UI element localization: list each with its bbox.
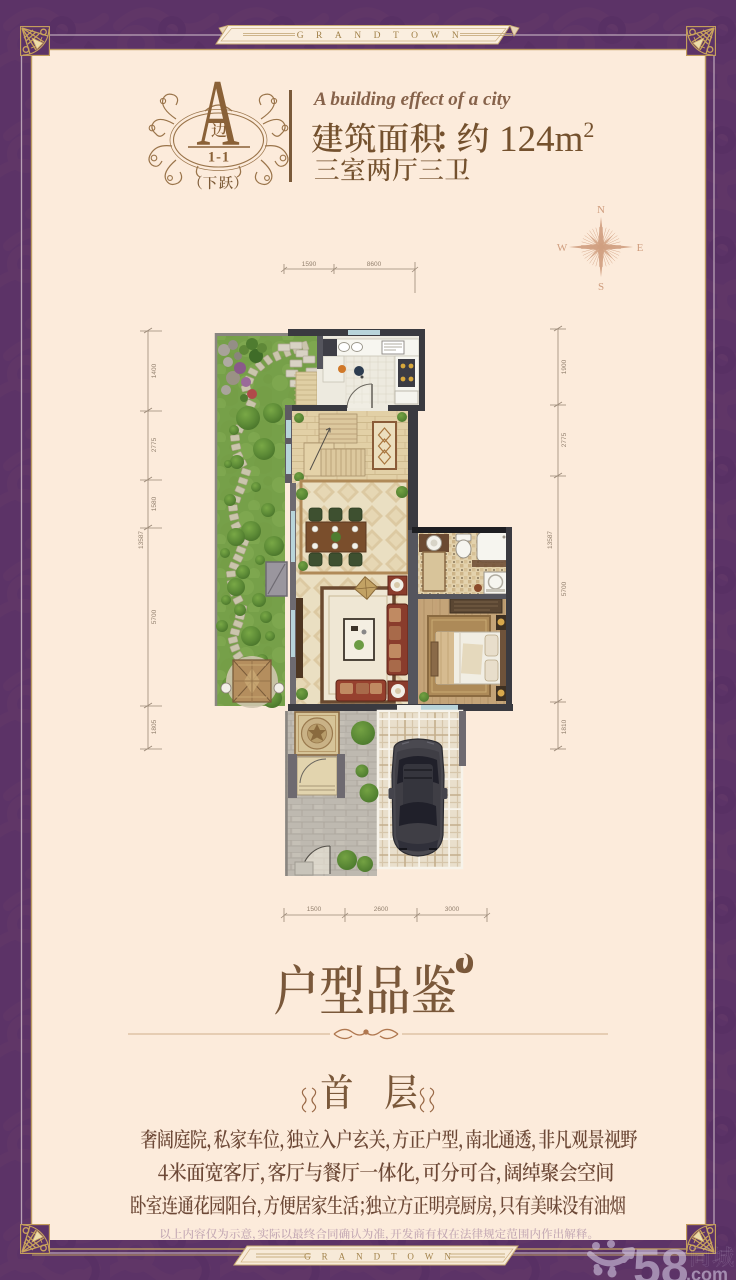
svg-text:8600: 8600: [367, 261, 382, 268]
svg-text:E: E: [637, 242, 644, 254]
svg-text:GRANDTOWN: GRANDTOWN: [304, 1252, 462, 1262]
svg-text:S: S: [598, 281, 604, 293]
svg-text:2775: 2775: [151, 437, 158, 452]
svg-text:5700: 5700: [561, 581, 568, 596]
svg-text:2775: 2775: [561, 432, 568, 447]
svg-text:1805: 1805: [151, 719, 158, 734]
svg-text:124m2: 124m2: [499, 117, 594, 160]
svg-text:N: N: [597, 204, 605, 216]
svg-text:3000: 3000: [445, 906, 460, 913]
svg-text:1810: 1810: [561, 719, 568, 734]
svg-text:1590: 1590: [302, 261, 317, 268]
svg-text:W: W: [557, 242, 568, 254]
svg-text:2600: 2600: [374, 906, 389, 913]
svg-text:1400: 1400: [151, 363, 158, 378]
svg-text:13587: 13587: [138, 531, 145, 549]
svg-text:1500: 1500: [307, 906, 322, 913]
svg-text:1900: 1900: [561, 359, 568, 374]
svg-text:A building effect of a city: A building effect of a city: [313, 89, 511, 110]
svg-text:58: 58: [633, 1239, 689, 1280]
svg-text:1580: 1580: [151, 496, 158, 511]
svg-text:GRANDTOWN: GRANDTOWN: [297, 31, 472, 41]
svg-text:13587: 13587: [547, 531, 554, 549]
svg-text:.com: .com: [686, 1265, 728, 1280]
svg-text:1-1: 1-1: [208, 150, 230, 166]
svg-text:5700: 5700: [151, 609, 158, 624]
